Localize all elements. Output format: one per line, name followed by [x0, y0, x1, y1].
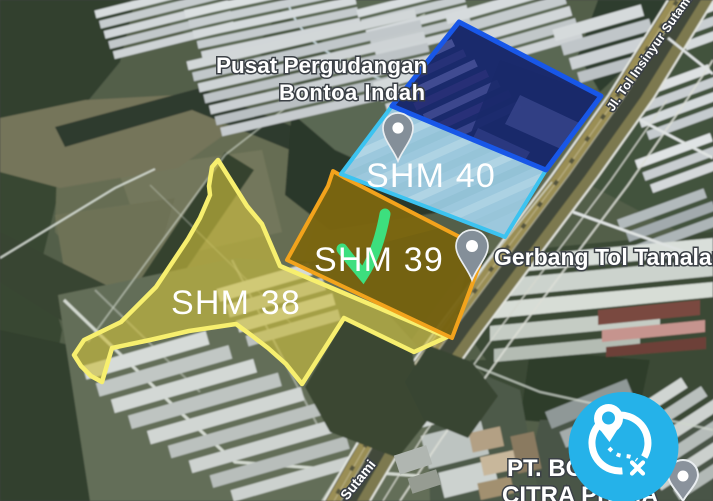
- svg-text:SHM 40: SHM 40: [366, 157, 496, 195]
- svg-text:Bontoa Indah: Bontoa Indah: [279, 80, 426, 105]
- svg-text:Gerbang Tol Tamalanrea: Gerbang Tol Tamalanrea: [494, 244, 713, 270]
- svg-text:SHM 38: SHM 38: [171, 284, 301, 322]
- svg-text:Pusat Pergudangan: Pusat Pergudangan: [216, 53, 427, 78]
- svg-text:SHM 39: SHM 39: [314, 241, 444, 279]
